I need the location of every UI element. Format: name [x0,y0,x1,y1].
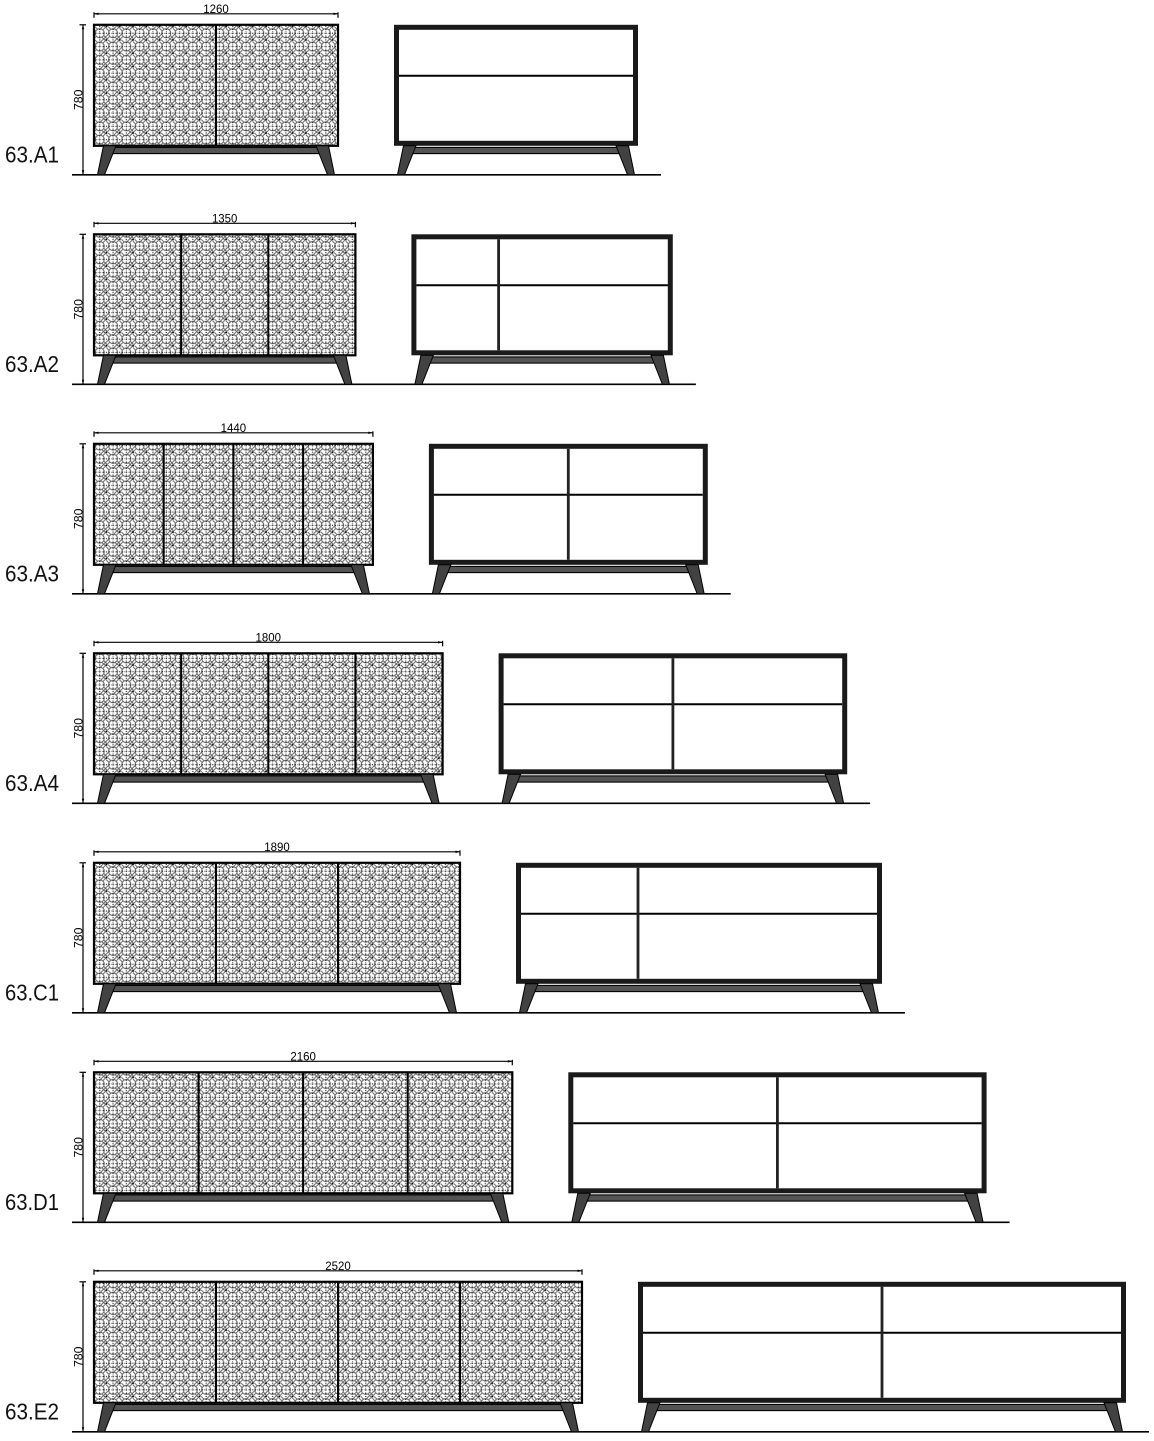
svg-text:63.C1: 63.C1 [5,979,59,1005]
svg-text:63.A4: 63.A4 [5,770,59,796]
svg-text:1350: 1350 [212,212,238,226]
svg-text:780: 780 [71,89,85,110]
svg-text:2160: 2160 [290,1050,316,1064]
svg-text:780: 780 [71,1346,85,1367]
svg-text:63.E2: 63.E2 [5,1398,59,1424]
svg-text:780: 780 [71,299,85,320]
svg-text:780: 780 [71,508,85,529]
svg-text:1440: 1440 [221,421,247,435]
svg-text:63.A2: 63.A2 [5,351,59,377]
svg-text:780: 780 [71,1137,85,1158]
svg-text:2520: 2520 [325,1259,351,1273]
svg-text:780: 780 [71,718,85,739]
svg-text:1800: 1800 [256,631,282,645]
svg-text:780: 780 [71,927,85,948]
svg-text:63.A1: 63.A1 [5,141,59,167]
svg-text:63.A3: 63.A3 [5,560,59,586]
svg-text:63.D1: 63.D1 [5,1189,59,1215]
svg-text:1890: 1890 [264,840,290,854]
svg-text:1260: 1260 [203,2,229,16]
